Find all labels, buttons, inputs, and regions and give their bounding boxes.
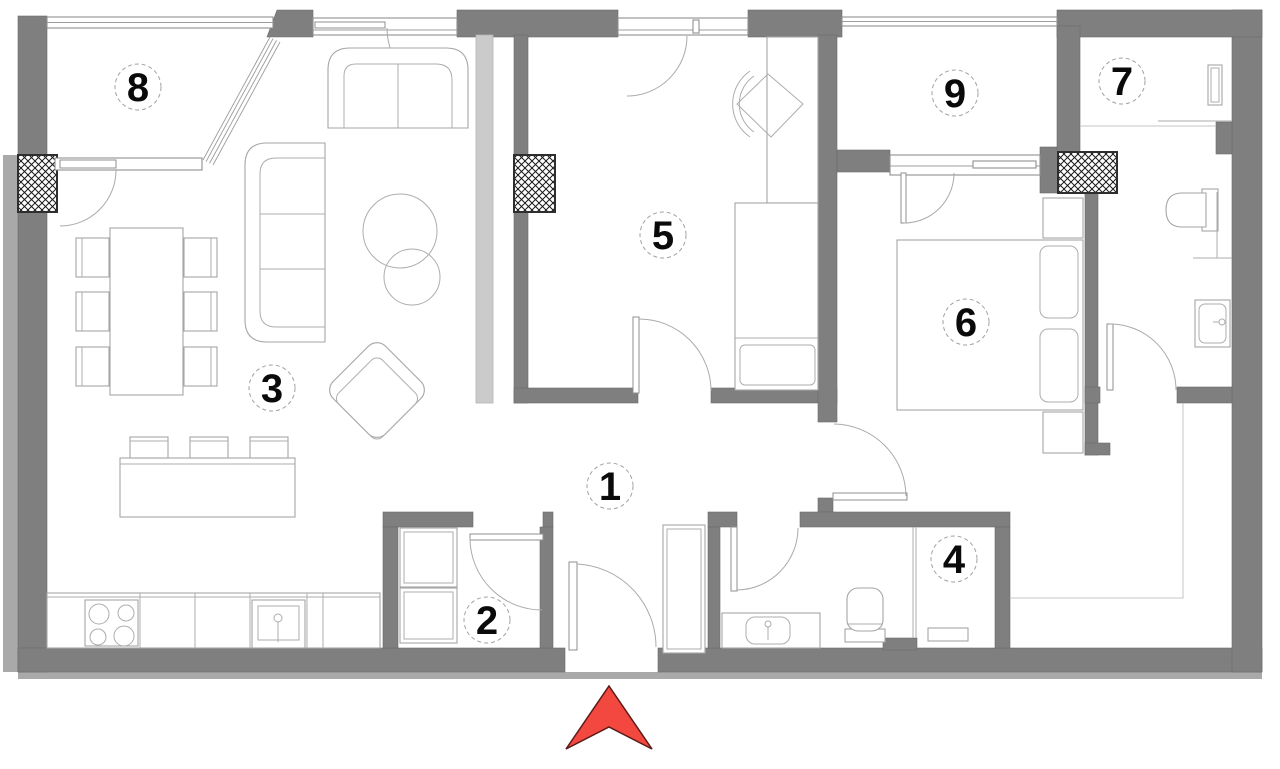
room-label-7: 7	[1099, 58, 1145, 104]
wall-bottom-right	[658, 648, 1262, 672]
side-table-small	[384, 249, 440, 305]
wall-top-d	[1057, 10, 1262, 37]
entrance-arrow	[566, 686, 652, 749]
toilet-icon	[845, 588, 885, 642]
room2-furniture	[400, 528, 457, 643]
wall-top-c	[748, 10, 842, 37]
shower-bench	[928, 628, 968, 641]
wardrobe	[767, 37, 818, 203]
kitchen-island	[120, 437, 295, 517]
svg-text:2: 2	[476, 599, 498, 643]
room-label-9: 9	[932, 70, 978, 116]
room5-door	[633, 317, 711, 393]
room-label-1: 1	[587, 463, 633, 509]
radiator-icon	[1208, 65, 1222, 105]
shaft-column-center	[514, 155, 555, 212]
room-label-6: 6	[943, 299, 989, 345]
svg-text:1: 1	[599, 465, 621, 509]
wall-bottom-left	[18, 648, 565, 672]
bed-double	[897, 240, 1083, 410]
room-label-3: 3	[249, 365, 295, 411]
room6-door	[833, 424, 907, 500]
room7-bathroom-fixtures	[1080, 65, 1232, 347]
svg-text:5: 5	[652, 214, 674, 258]
dining-table	[110, 228, 183, 395]
room-label-5: 5	[640, 212, 686, 258]
room-label-2: 2	[464, 597, 510, 643]
shaft-column-right	[1058, 152, 1117, 193]
nightstand	[1043, 198, 1083, 238]
loveseat	[328, 48, 468, 128]
room4-bathroom-fixtures	[722, 527, 968, 648]
shaft-column-left	[18, 155, 57, 212]
floor-plan-drawing: 123456789	[0, 0, 1280, 769]
hall-cabinet	[663, 525, 705, 653]
room5-balcony-door	[627, 36, 687, 96]
svg-text:9: 9	[944, 72, 966, 116]
bed-single	[735, 203, 818, 390]
vanity	[722, 613, 820, 648]
svg-text:4: 4	[943, 538, 966, 582]
windows	[47, 17, 1057, 175]
kitchen-sink-icon	[252, 600, 305, 648]
entrance-door	[569, 562, 656, 650]
room5-window	[618, 18, 748, 35]
kitchen-counter	[47, 593, 380, 648]
svg-text:8: 8	[127, 66, 149, 110]
washbasin-icon	[1195, 300, 1230, 347]
svg-text:6: 6	[955, 301, 977, 345]
nightstand	[1043, 412, 1083, 453]
svg-text:3: 3	[261, 367, 283, 411]
room4-door	[731, 527, 798, 591]
room-label-4: 4	[931, 536, 977, 582]
room-label-8: 8	[115, 64, 161, 110]
washer-icon	[400, 528, 457, 587]
bath7-door	[1107, 324, 1176, 390]
wall-right	[1232, 10, 1262, 672]
armchair	[325, 338, 430, 443]
wall-top-b	[457, 10, 618, 37]
sofa	[245, 143, 325, 342]
svg-text:7: 7	[1111, 60, 1133, 104]
wall-chase	[476, 35, 493, 403]
toilet-icon	[1166, 189, 1218, 231]
wall-left	[18, 16, 47, 672]
dryer-icon	[400, 588, 457, 643]
room6-terrace-door	[901, 173, 954, 223]
room5-furniture	[733, 37, 818, 390]
room6-furniture	[897, 198, 1183, 598]
side-table-large	[363, 194, 437, 268]
wall-top-angled	[267, 10, 313, 37]
floor-plan-page: 123456789	[0, 0, 1280, 769]
cooktop-icon	[85, 600, 138, 646]
